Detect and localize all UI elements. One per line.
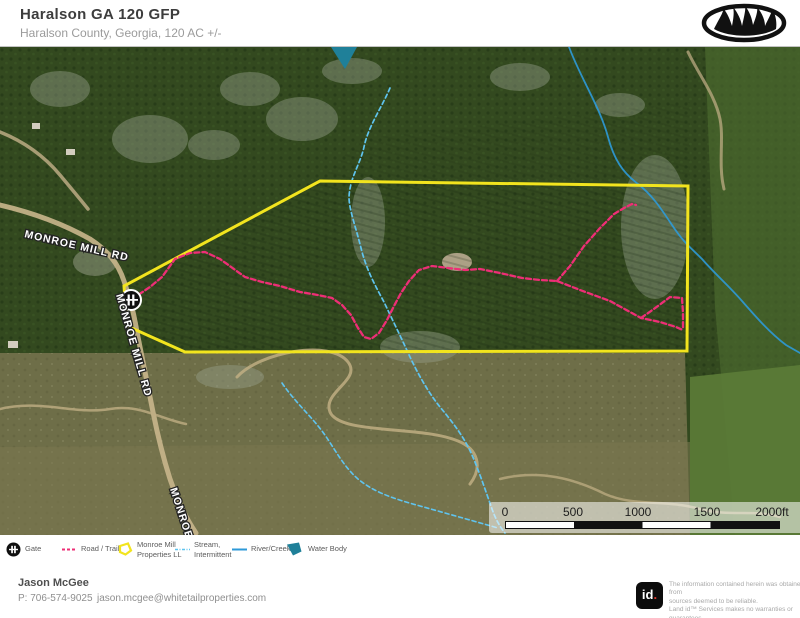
house bbox=[66, 149, 75, 155]
scale-tick: 0 bbox=[502, 505, 509, 519]
scale-bar: 0 500 1000 1500 2000ft bbox=[489, 502, 800, 533]
map-graphics: MONROE MILL RD MONROE MILL RD MONROE bbox=[0, 47, 800, 535]
header: Haralson GA 120 GFP Haralson County, Geo… bbox=[0, 0, 800, 47]
bare-patch bbox=[188, 130, 240, 160]
house bbox=[8, 341, 18, 348]
scale-tick: 1500 bbox=[694, 505, 721, 519]
land-id-logo-dot: . bbox=[653, 587, 657, 602]
scale-tick: 500 bbox=[563, 505, 583, 519]
bare-patch bbox=[322, 58, 382, 84]
legend-label: Water Body bbox=[308, 544, 347, 554]
bare-patch bbox=[220, 72, 280, 106]
stream-icon bbox=[175, 542, 190, 557]
bare-patch bbox=[112, 115, 188, 163]
bare-patch bbox=[490, 63, 550, 91]
legend-label: Road / Trail bbox=[81, 544, 119, 554]
land-id-logo-text: id bbox=[642, 587, 654, 602]
bare-patch bbox=[266, 97, 338, 141]
bare-patch bbox=[196, 365, 264, 389]
disclaimer-line: Land id™ Services makes no warranties or… bbox=[669, 606, 800, 618]
property-boundary-icon bbox=[118, 542, 133, 557]
legend-label: River/Creek bbox=[251, 544, 291, 554]
whitetail-antler-logo bbox=[700, 3, 788, 49]
agent-name: Jason McGee bbox=[18, 577, 89, 589]
house bbox=[32, 123, 40, 129]
legend: Gate Road / Trail Monroe Mill Properties… bbox=[0, 535, 800, 570]
scale-bar-segments bbox=[505, 521, 780, 529]
disclaimer-line: sources deemed to be reliable. bbox=[669, 598, 800, 606]
page-subtitle: Haralson County, Georgia, 120 AC +/- bbox=[20, 26, 222, 40]
map-sheet: Haralson GA 120 GFP Haralson County, Geo… bbox=[0, 0, 800, 618]
footer: Jason McGee P: 706-574-9025 jason.mcgee@… bbox=[0, 570, 800, 618]
page-title: Haralson GA 120 GFP bbox=[20, 6, 180, 23]
agent-email[interactable]: jason.mcgee@whitetailproperties.com bbox=[97, 593, 266, 604]
legend-label: Gate bbox=[25, 544, 41, 554]
gate-icon-post bbox=[132, 295, 134, 306]
map-canvas: MONROE MILL RD MONROE MILL RD MONROE 0 5… bbox=[0, 47, 800, 535]
agent-phone: P: 706-574-9025 bbox=[18, 593, 93, 604]
legend-label: Stream, Intermittent bbox=[194, 540, 232, 560]
gate-icon bbox=[6, 542, 21, 557]
bare-patch bbox=[30, 71, 90, 107]
legend-label-line1: Stream, bbox=[194, 540, 232, 550]
road-trail-icon bbox=[62, 542, 77, 557]
scale-tick: 1000 bbox=[625, 505, 652, 519]
disclaimer-line: The information contained herein was obt… bbox=[669, 581, 800, 598]
antler-logo-icon bbox=[700, 3, 788, 44]
land-id-logo: id. bbox=[636, 582, 663, 609]
river-creek-icon bbox=[232, 542, 247, 557]
legend-label-line2: Intermittent bbox=[194, 550, 232, 560]
disclaimer: The information contained herein was obt… bbox=[669, 581, 800, 618]
scale-tick: 2000ft bbox=[755, 505, 788, 519]
water-body-icon bbox=[286, 542, 303, 557]
